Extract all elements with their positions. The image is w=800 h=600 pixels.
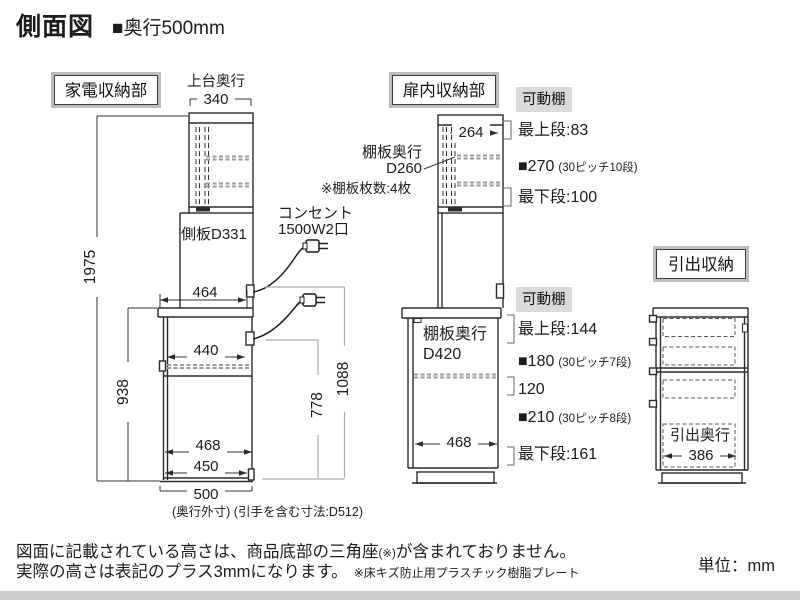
drawer-handle-1 xyxy=(650,316,657,323)
drawer-inner-boxes xyxy=(663,319,735,468)
dim-1088-line xyxy=(262,287,345,479)
drawer-handle-2 xyxy=(650,339,657,346)
dim-468-mid: 468 xyxy=(440,434,478,451)
appliance-upper-cabinet xyxy=(189,113,253,213)
shelf-depth-value-lower: D420 xyxy=(423,346,461,364)
row-main: ■270 xyxy=(518,158,554,175)
page-title: 側面図 xyxy=(16,13,94,42)
shelf-spec-row: 最下段:161 xyxy=(518,446,601,464)
row-main: 最下段:161 xyxy=(518,446,597,463)
row-main: 最上段:144 xyxy=(518,321,597,338)
range-brackets xyxy=(504,121,514,465)
dim-468-left: 468 xyxy=(189,437,227,454)
shelf-depth-caption-upper: 棚板奥行 xyxy=(352,144,422,161)
dim-500: 500 xyxy=(187,486,225,503)
row-main: ■180 xyxy=(518,353,554,370)
door-dimension-lines xyxy=(415,130,498,447)
outlet-box-lower xyxy=(246,332,254,345)
shelf-spec-row: 最上段:144 xyxy=(518,321,601,339)
dim-264: 264 xyxy=(452,124,490,141)
lower-movable-shelf xyxy=(414,375,497,378)
outlet-box xyxy=(497,284,504,298)
dim-938: 938 xyxy=(114,362,134,422)
footer-bar xyxy=(0,591,800,600)
drawer-handle-4 xyxy=(650,401,657,408)
note2-small: ※床キズ防止用プラスチック樹脂プレート xyxy=(354,566,580,580)
shelf-depth-caption-lower: 棚板奥行 xyxy=(423,326,487,344)
plug-prongs-2 xyxy=(316,298,325,303)
hinge-mark xyxy=(743,324,748,332)
movable-shelf xyxy=(457,156,500,186)
divider xyxy=(656,368,748,372)
counter-top xyxy=(653,308,748,317)
row-main: 120 xyxy=(518,381,545,398)
lower-movable-shelf xyxy=(167,365,250,368)
footer-note-line2: 実際の高さは表記のプラス3mmになります。※床キズ防止用プラスチック樹脂プレート xyxy=(16,563,580,582)
row-sub: (30ピッチ7段) xyxy=(558,357,631,369)
row-main: ■210 xyxy=(518,409,554,426)
shelf-spec-row: ■210(30ピッチ8段) xyxy=(518,409,631,427)
dim-1088: 1088 xyxy=(334,346,354,412)
note1-main: 図面に記載されている高さは、商品底部の三角座 xyxy=(16,543,379,561)
page-subtitle: ■奥行500mm xyxy=(112,18,225,40)
power-plug-2 xyxy=(303,294,316,306)
shelf-spec-row: 120 xyxy=(518,381,549,399)
dim-464: 464 xyxy=(186,284,224,301)
diagram-page: 側面図 ■奥行500mm 家電収納部 上台奥行 340 1975 側板D331 … xyxy=(0,0,800,600)
fixed-shelf-edge xyxy=(448,207,462,212)
kick-base xyxy=(662,473,742,483)
appliance-power-cords xyxy=(253,240,328,339)
dim-1975-line xyxy=(97,116,188,481)
movable-shelf-badge-upper: 可動棚 xyxy=(516,87,572,112)
movable-shelf xyxy=(206,157,250,187)
shelf-leader-line xyxy=(424,157,455,169)
power-plug-1 xyxy=(306,240,319,252)
unit-label: 単位：mm xyxy=(698,557,775,576)
dim-340: 340 xyxy=(197,91,235,108)
shelf-spec-row: ■180(30ピッチ7段) xyxy=(518,353,631,371)
door-handle xyxy=(249,469,255,480)
power-cord-2 xyxy=(253,300,303,339)
top-depth-caption: 上台奥行 xyxy=(187,74,245,91)
kick-base xyxy=(417,472,494,483)
drawer-depth-caption: 引出奥行 xyxy=(665,427,735,444)
shelf-spec-row: ■270(30ピッチ10段) xyxy=(518,158,638,176)
shelf-spec-row: 最上段:83 xyxy=(518,122,592,140)
drawer-handle-3 xyxy=(650,368,657,375)
note1-tail: が含まれておりません。 xyxy=(396,543,576,561)
dim-440: 440 xyxy=(187,342,225,359)
outlet-label-line1: コンセント xyxy=(278,205,353,222)
door-mid-section xyxy=(438,213,503,308)
drawer-section-label: 引出収納 xyxy=(656,249,746,279)
power-cord-1 xyxy=(253,246,306,292)
base-depth-note: (奥行外寸) (引手を含む寸法:D512) xyxy=(172,505,363,519)
plug-prongs-1 xyxy=(319,244,328,249)
note2-main: 実際の高さは表記のプラス3mmになります。 xyxy=(16,563,348,581)
side-panel-label: 側板D331 xyxy=(181,226,247,243)
gray-dimension-lines xyxy=(262,287,345,479)
outlet-label-line2: 1500W2口 xyxy=(278,221,349,238)
movable-shelf-badge-lower: 可動棚 xyxy=(516,287,572,312)
corner-mark xyxy=(414,319,421,323)
dim-450: 450 xyxy=(187,458,225,475)
fixed-shelf-edge xyxy=(196,207,210,212)
drawer-box-1 xyxy=(663,319,735,337)
shelf-depth-value-upper: D260 xyxy=(352,160,422,177)
counter-top xyxy=(402,308,501,318)
note1-asterisk: (※) xyxy=(379,548,396,560)
row-main: 最下段:100 xyxy=(518,189,597,206)
appliance-section-label: 家電収納部 xyxy=(54,75,158,105)
shelf-count-note: ※棚板枚数:4枚 xyxy=(321,181,411,197)
shelf-support-tab xyxy=(160,361,166,371)
drawer-box-3 xyxy=(663,380,735,398)
door-section-label: 扉内収納部 xyxy=(392,75,496,105)
row-sub: (30ピッチ8段) xyxy=(558,413,631,425)
shelf-pin-holes xyxy=(196,127,209,206)
dim-386: 386 xyxy=(682,447,720,464)
row-sub: (30ピッチ10段) xyxy=(558,162,637,174)
arrowheads xyxy=(415,130,498,447)
drawer-box-2 xyxy=(663,347,735,365)
shelf-spec-row: 最下段:100 xyxy=(518,189,601,207)
appliance-dimension-lines xyxy=(97,99,252,491)
footer-note-line1: 図面に記載されている高さは、商品底部の三角座(※)が含まれておりません。 xyxy=(16,543,576,562)
row-main: 最上段:83 xyxy=(518,122,588,139)
dim-1975: 1975 xyxy=(81,237,101,297)
outlet-box-upper xyxy=(247,285,255,297)
dim-778: 778 xyxy=(308,375,328,435)
counter-top xyxy=(158,308,253,317)
